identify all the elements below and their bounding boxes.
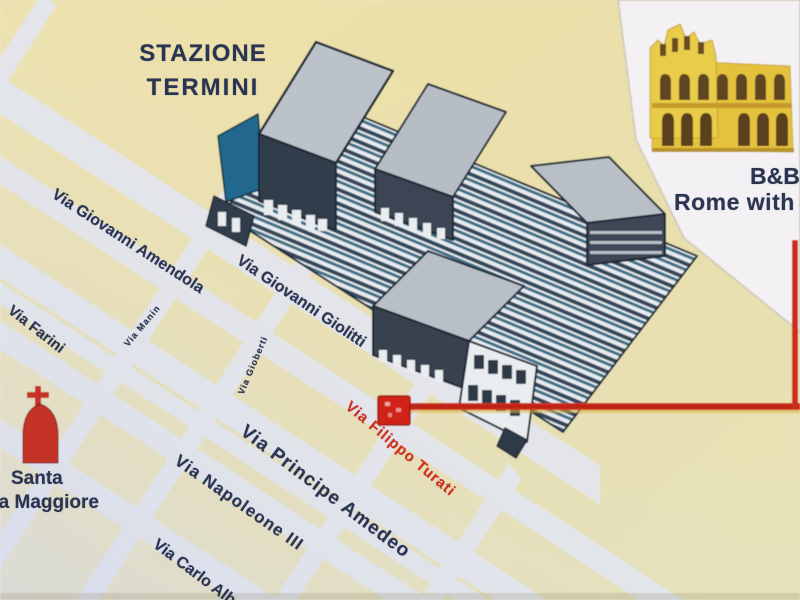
promo-label-line2: Rome with (674, 189, 795, 216)
church-label-line1: Santa (11, 468, 63, 490)
map-artwork (0, 0, 800, 600)
station-label-line1: STAZIONE (128, 40, 278, 68)
church-label-line2: ria Maggiore (0, 492, 99, 514)
bottom-edge-shadow (0, 593, 800, 600)
station-label-line2: TERMINI (128, 74, 278, 102)
location-marker (378, 396, 410, 425)
promo-label-line1: B&B (750, 163, 800, 190)
map-canvas: STAZIONE TERMINI Via Giovanni Amendola V… (0, 0, 800, 600)
